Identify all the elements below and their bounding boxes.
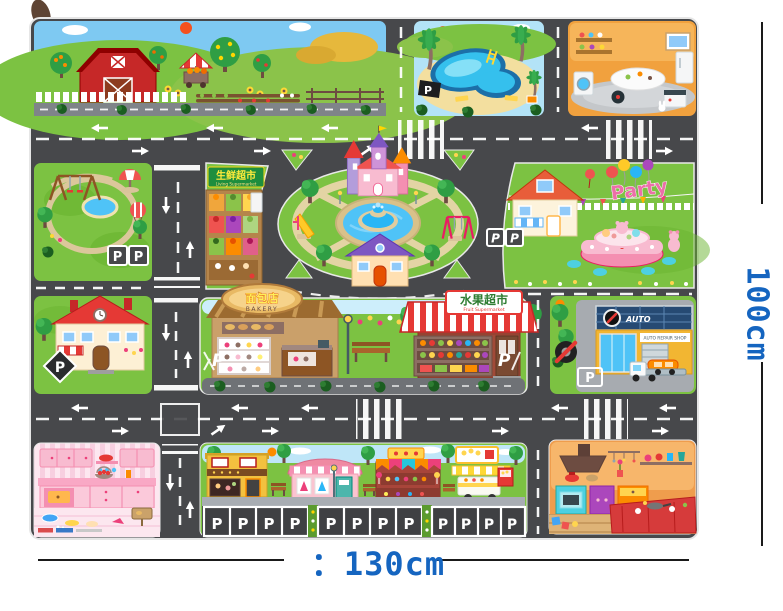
school-parking-letter: P bbox=[55, 360, 65, 376]
pink-bear bbox=[668, 230, 680, 252]
height-dimension-label: 100cm bbox=[740, 266, 775, 361]
shops-panel: 面包店 BAKERY 水 bbox=[200, 284, 542, 394]
stall-letter: P bbox=[238, 515, 249, 533]
auto-repair-shop-scene: AUTO AUTO REPAIR SHOP P bbox=[550, 296, 696, 394]
home-kitchen-scene bbox=[568, 21, 696, 116]
fruit-sign-en: Fruit Supermarket bbox=[463, 307, 505, 313]
auto-banner-text: AUTO REPAIR SHOP bbox=[644, 336, 687, 342]
stall-letter: P bbox=[507, 517, 517, 533]
stall-letter: P bbox=[378, 515, 389, 533]
park-parking-sign: P P bbox=[108, 246, 148, 265]
product-photo: P bbox=[0, 0, 783, 611]
stall-letter: P bbox=[352, 515, 363, 533]
pool-parking-sign: P bbox=[418, 80, 441, 98]
auto-parking-letter: P bbox=[585, 371, 595, 386]
fruit-sign: 水果超市 Fruit Supermarket bbox=[446, 291, 522, 314]
orange-kitchen-scene bbox=[549, 440, 696, 534]
stall-letter: P bbox=[326, 515, 337, 533]
street-shops-scene: P P P P P P P P P P P P bbox=[200, 443, 527, 537]
playground-park-scene: P P bbox=[34, 163, 152, 281]
height-dimension-line-bottom bbox=[761, 362, 763, 546]
party-parking-letter-1: P bbox=[491, 232, 500, 246]
pool-parking-letter: P bbox=[424, 84, 432, 97]
height-dimension-line-top bbox=[761, 22, 763, 204]
stall-letter: P bbox=[264, 515, 275, 533]
party-scene: Party bbox=[503, 159, 710, 288]
sidewalk bbox=[202, 497, 525, 506]
pink-kitchen-scene bbox=[34, 443, 160, 537]
bakery-sign: 面包店 BAKERY bbox=[222, 284, 302, 314]
stall-letter: P bbox=[438, 517, 448, 533]
picket-fence bbox=[36, 92, 186, 102]
stall-letter: P bbox=[212, 515, 223, 533]
boutique-shop bbox=[288, 459, 362, 500]
bakery-sign-en: BAKERY bbox=[246, 306, 278, 313]
party-parking-sign: P P bbox=[487, 229, 523, 246]
fresh-market-sign-cn: 生鲜超市 bbox=[216, 169, 256, 182]
park-parking-letter-2: P bbox=[134, 250, 144, 265]
party-parking-letter-2: P bbox=[510, 232, 519, 246]
castle-roundabout bbox=[278, 126, 478, 286]
park-parking-letter-1: P bbox=[113, 250, 123, 265]
fresh-market-stand: 生鲜超市 Living Supermarket bbox=[206, 163, 268, 289]
stall-letter: P bbox=[404, 515, 415, 533]
stall-letter: P bbox=[484, 517, 494, 533]
fresh-market-sign-en: Living Supermarket bbox=[216, 182, 257, 187]
school-house-scene: P bbox=[34, 296, 152, 394]
swimming-pool-scene: P bbox=[397, 21, 556, 118]
width-dimension-label: ：130cm bbox=[311, 539, 445, 585]
width-dimension-line-right bbox=[437, 559, 689, 561]
stall-letter: P bbox=[290, 515, 301, 533]
play-mat-artwork: P bbox=[0, 0, 783, 611]
cafe-shop bbox=[205, 453, 269, 497]
stall-letter: P bbox=[461, 517, 471, 533]
bakery-sign-cn: 面包店 bbox=[246, 291, 279, 305]
fruit-sign-cn: 水果超市 bbox=[460, 292, 508, 307]
auto-logo-text: AUTO bbox=[625, 315, 651, 324]
width-dimension-line-left bbox=[38, 559, 284, 561]
fruit-road-parking-letter: P bbox=[498, 351, 511, 371]
parking-stalls: P P P P P P P P P P P P bbox=[202, 505, 525, 537]
